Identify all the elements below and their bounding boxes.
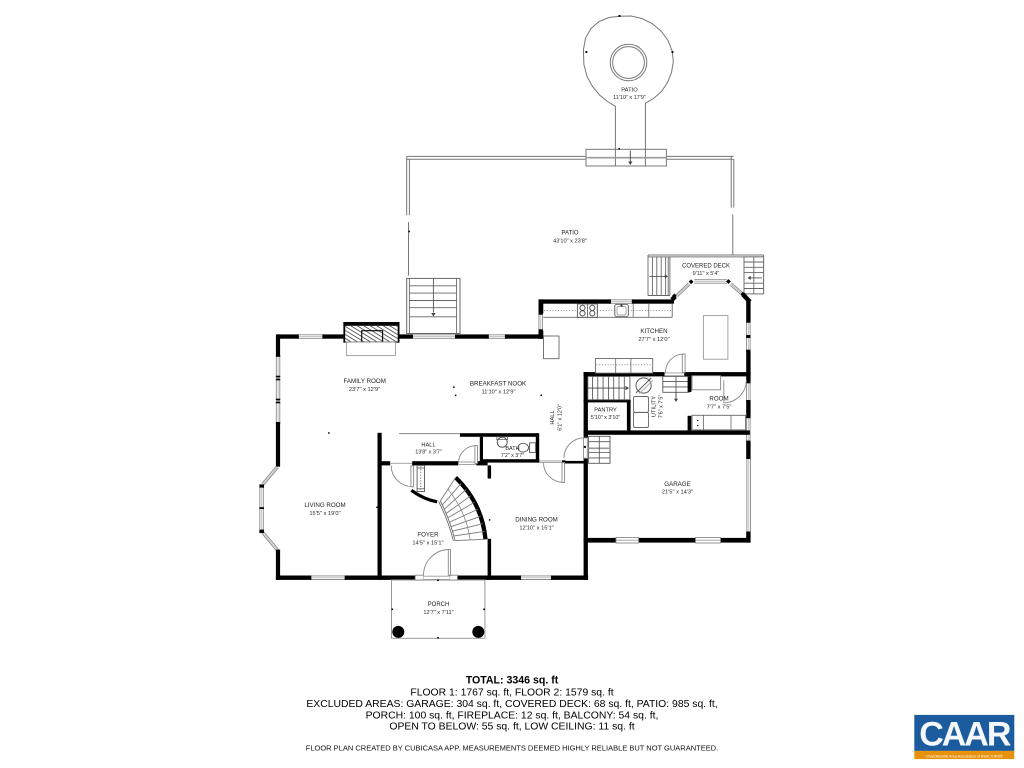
- svg-text:11'10" x 12'9": 11'10" x 12'9": [482, 390, 516, 396]
- svg-text:DINING ROOM: DINING ROOM: [515, 517, 558, 524]
- svg-text:PATIO: PATIO: [621, 88, 638, 94]
- svg-text:OPEN TO BELOW: 55 sq. ft, LOW: OPEN TO BELOW: 55 sq. ft, LOW CEILING: 1…: [389, 722, 634, 733]
- svg-text:FLOOR PLAN CREATED BY CUBICASA: FLOOR PLAN CREATED BY CUBICASA APP. MEAS…: [306, 743, 718, 752]
- svg-text:HALL: HALL: [421, 443, 435, 449]
- svg-text:KITCHEN: KITCHEN: [640, 328, 667, 335]
- svg-text:PANTRY: PANTRY: [594, 408, 617, 414]
- svg-text:PORCH: 100 sq. ft, FIREPLACE:: PORCH: 100 sq. ft, FIREPLACE: 12 sq. ft,…: [366, 710, 659, 721]
- svg-text:12'10" x 15'1": 12'10" x 15'1": [519, 526, 553, 532]
- svg-text:HALL: HALL: [550, 410, 556, 424]
- svg-text:PATIO: PATIO: [561, 231, 578, 237]
- svg-text:EXCLUDED AREAS: GARAGE: 304 sq: EXCLUDED AREAS: GARAGE: 304 sq. ft, COVE…: [306, 699, 717, 710]
- svg-text:12'7" x 7'11": 12'7" x 7'11": [423, 610, 453, 616]
- svg-text:5'10" x 3'10": 5'10" x 3'10": [591, 415, 621, 421]
- svg-text:ROOM: ROOM: [709, 396, 728, 403]
- svg-text:BREAKFAST NOOK: BREAKFAST NOOK: [470, 381, 527, 388]
- svg-text:PORCH: PORCH: [428, 602, 450, 608]
- svg-text:13'8" x 3'7": 13'8" x 3'7": [415, 450, 442, 456]
- svg-text:7'6" x 7'5": 7'6" x 7'5": [659, 395, 665, 419]
- svg-text:BATH: BATH: [505, 446, 519, 452]
- svg-text:14'5" x 15'1": 14'5" x 15'1": [412, 541, 443, 547]
- svg-text:TOTAL: 3346 sq. ft: TOTAL: 3346 sq. ft: [466, 675, 559, 687]
- svg-text:7'7" x 7'5": 7'7" x 7'5": [707, 404, 732, 410]
- svg-text:FAMILY ROOM: FAMILY ROOM: [343, 378, 385, 385]
- svg-text:27'7" x 12'0": 27'7" x 12'0": [638, 337, 669, 343]
- svg-text:21'5" x 14'3": 21'5" x 14'3": [662, 490, 693, 496]
- svg-text:9'11" x 5'4": 9'11" x 5'4": [693, 271, 720, 277]
- svg-text:UTILITY: UTILITY: [652, 396, 658, 417]
- svg-text:7'2" x 3'7": 7'2" x 3'7": [501, 453, 524, 459]
- svg-text:FOYER: FOYER: [417, 532, 439, 539]
- svg-text:FLOOR 1: 1767 sq. ft, FLOOR 2:: FLOOR 1: 1767 sq. ft, FLOOR 2: 1579 sq. …: [410, 687, 613, 698]
- svg-text:11'10" x 17'9": 11'10" x 17'9": [613, 95, 646, 101]
- svg-text:43'10" x 23'8": 43'10" x 23'8": [553, 239, 587, 245]
- svg-text:6'1" x 12'0": 6'1" x 12'0": [558, 404, 564, 431]
- svg-text:15'5" x 19'0": 15'5" x 19'0": [309, 511, 340, 517]
- svg-text:GARAGE: GARAGE: [664, 481, 690, 488]
- svg-text:23'7" x 12'9": 23'7" x 12'9": [349, 387, 380, 393]
- svg-text:CAAR: CAAR: [919, 715, 1011, 753]
- svg-text:Charlottesville Area Associati: Charlottesville Area Association of REAL…: [926, 755, 1003, 759]
- svg-text:LIVING ROOM: LIVING ROOM: [304, 502, 345, 509]
- svg-text:COVERED DECK: COVERED DECK: [682, 264, 730, 270]
